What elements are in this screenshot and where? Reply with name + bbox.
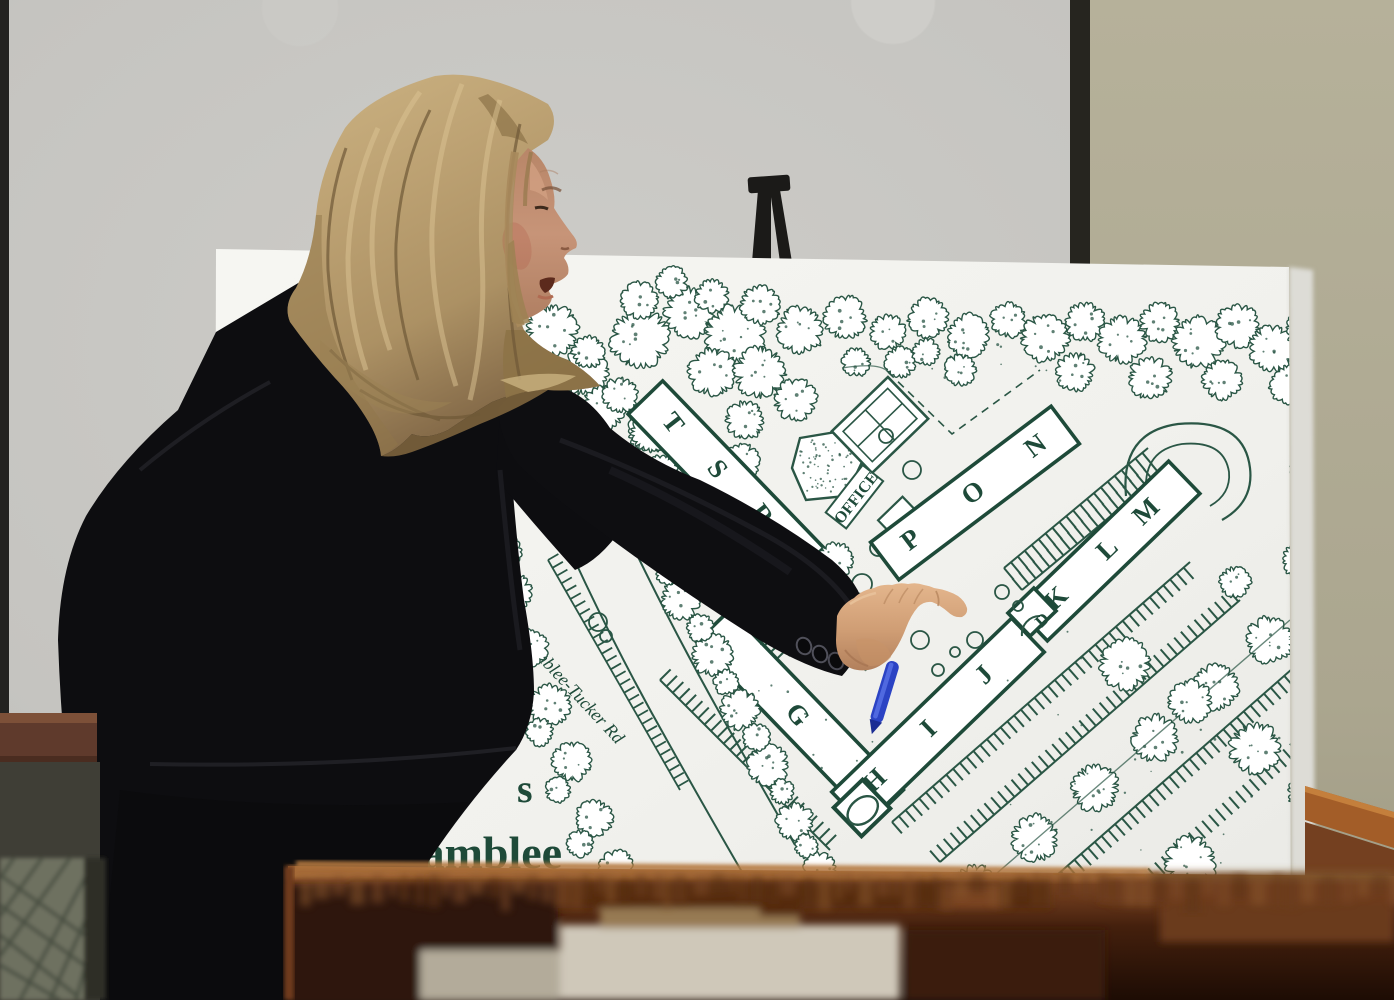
svg-text:s: s: [517, 766, 533, 811]
